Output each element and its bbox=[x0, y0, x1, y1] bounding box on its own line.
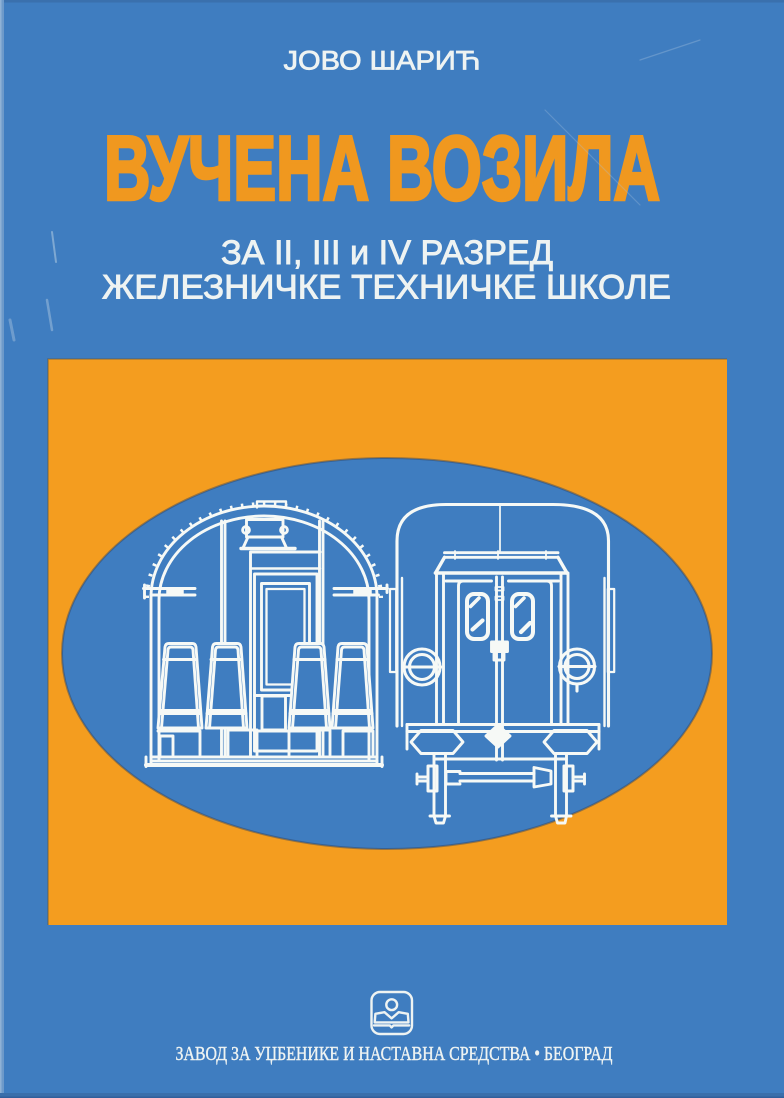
svg-text:ВУЧЕНА ВОЗИЛА: ВУЧЕНА ВОЗИЛА bbox=[104, 119, 660, 220]
svg-text:ЈОВО ШАРИЋ: ЈОВО ШАРИЋ bbox=[284, 46, 481, 76]
svg-text:ЗАВОД ЗА УЏБЕНИКЕ И НАСТАВНА С: ЗАВОД ЗА УЏБЕНИКЕ И НАСТАВНА СРЕДСТВА • … bbox=[176, 1043, 613, 1065]
svg-text:ЖЕЛЕЗНИЧКЕ ТЕХНИЧКЕ ШКОЛЕ: ЖЕЛЕЗНИЧКЕ ТЕХНИЧКЕ ШКОЛЕ bbox=[102, 269, 671, 307]
svg-text:ЗА II, III и IV РАЗРЕД: ЗА II, III и IV РАЗРЕД bbox=[221, 234, 553, 272]
